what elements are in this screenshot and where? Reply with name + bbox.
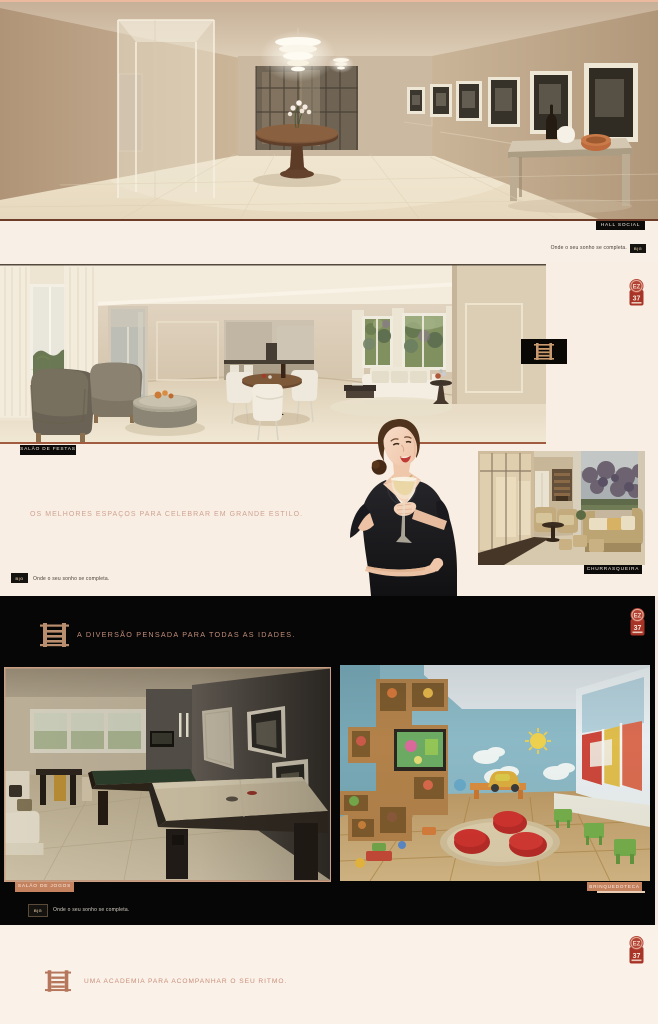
svg-text:EZ: EZ — [634, 613, 642, 619]
svg-text:37: 37 — [634, 625, 642, 632]
svg-text:37: 37 — [633, 296, 641, 303]
svg-text:EZ: EZ — [633, 941, 641, 947]
svg-text:EZ: EZ — [633, 284, 641, 290]
svg-text:37: 37 — [633, 953, 641, 960]
